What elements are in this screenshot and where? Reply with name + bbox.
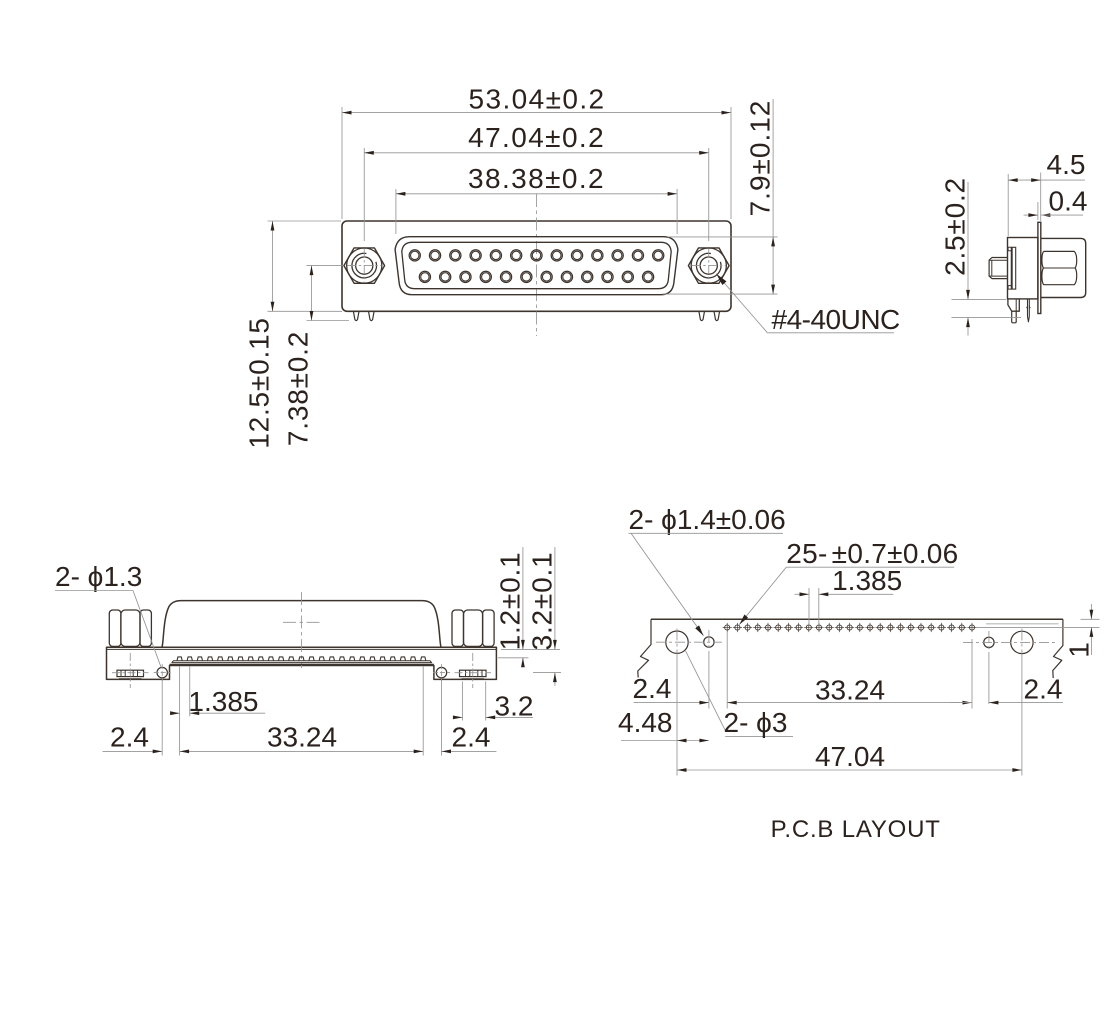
svg-text:47.04: 47.04	[815, 741, 885, 772]
svg-text:7.38±0.2: 7.38±0.2	[283, 331, 314, 446]
svg-text:2- ϕ1.4±0.06: 2- ϕ1.4±0.06	[629, 504, 786, 535]
svg-text:2.4: 2.4	[633, 673, 672, 704]
svg-text:2.4: 2.4	[110, 721, 149, 752]
svg-text:2- ϕ3: 2- ϕ3	[724, 707, 788, 738]
svg-text:0.4: 0.4	[1049, 186, 1088, 217]
svg-text:P.C.B LAYOUT: P.C.B LAYOUT	[771, 816, 941, 843]
svg-text:4.5: 4.5	[1047, 149, 1086, 180]
svg-text:33.24: 33.24	[815, 675, 885, 706]
svg-text:33.24: 33.24	[267, 721, 337, 752]
svg-text:2.4: 2.4	[1024, 674, 1063, 705]
svg-text:2.4: 2.4	[452, 721, 491, 752]
svg-text:53.04±0.2: 53.04±0.2	[469, 84, 606, 115]
svg-text:38.38±0.2: 38.38±0.2	[468, 163, 605, 194]
svg-text:1: 1	[1064, 642, 1095, 658]
svg-text:3.2: 3.2	[495, 690, 534, 721]
svg-text:4.48: 4.48	[618, 707, 673, 738]
svg-text:12.5±0.15: 12.5±0.15	[244, 317, 275, 449]
svg-text:3.2±0.1: 3.2±0.1	[526, 552, 557, 651]
svg-text:1.2±0.1: 1.2±0.1	[494, 552, 525, 651]
svg-text:1.385: 1.385	[188, 686, 258, 717]
svg-text:7.9±0.12: 7.9±0.12	[745, 100, 776, 217]
svg-text:1.385: 1.385	[832, 565, 902, 596]
svg-text:2- ϕ1.3: 2- ϕ1.3	[55, 561, 142, 592]
svg-text:47.04±0.2: 47.04±0.2	[468, 122, 605, 153]
svg-text:#4-40UNC: #4-40UNC	[772, 304, 901, 335]
svg-text:2.5±0.2: 2.5±0.2	[940, 177, 971, 276]
